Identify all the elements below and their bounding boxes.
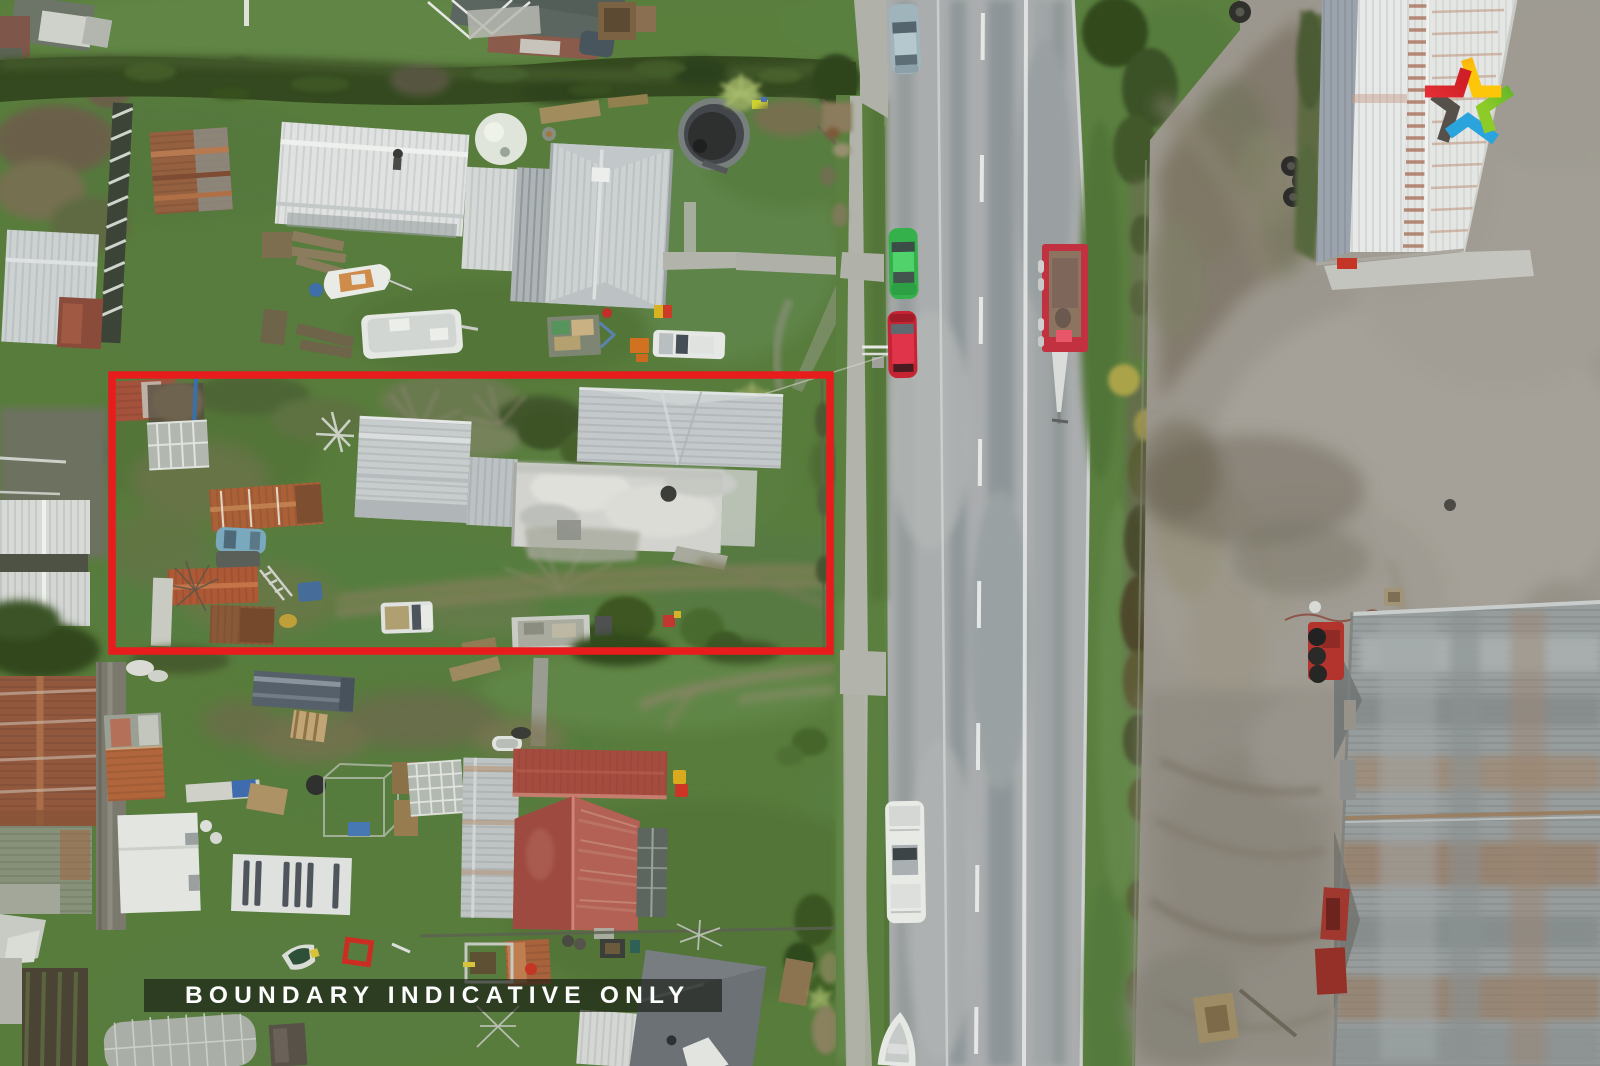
svg-text:BOUNDARY INDICATIVE ONLY: BOUNDARY INDICATIVE ONLY <box>185 982 690 1009</box>
